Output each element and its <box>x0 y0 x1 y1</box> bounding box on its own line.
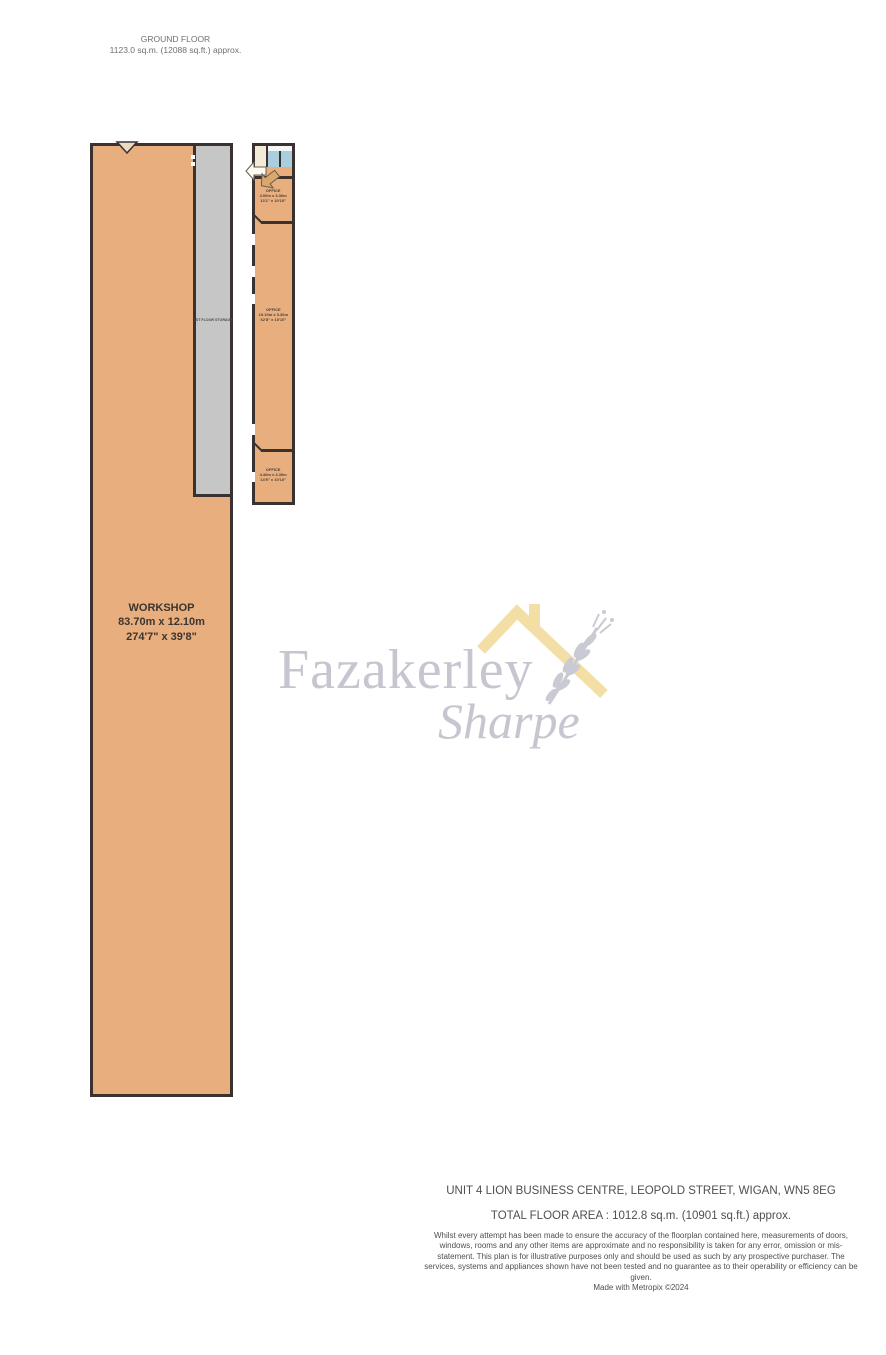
room-dim-imperial: 14'5" x 10'10" <box>260 478 287 483</box>
floor-area: 1123.0 sq.m. (12088 sq.ft.) approx. <box>93 45 258 56</box>
fixture-door-panel <box>255 146 268 167</box>
office-label: OFFICE 19.10m x 3.30m 62'8" x 10'10" <box>246 302 301 328</box>
storage-label: 1ST FLOOR STORAGE <box>186 312 240 328</box>
property-address: UNIT 4 LION BUSINESS CENTRE, LEOPOLD STR… <box>423 1185 859 1197</box>
watermark-brand-line2: Sharpe <box>438 692 638 750</box>
window-opening <box>251 424 255 435</box>
room-name: WORKSHOP <box>90 601 233 615</box>
room-dim-imperial: 274'7" x 39'8" <box>90 630 233 644</box>
footer: UNIT 4 LION BUSINESS CENTRE, LEOPOLD STR… <box>423 1185 859 1293</box>
room-dim-metric: 83.70m x 12.10m <box>90 615 233 629</box>
interior-wall <box>261 221 293 224</box>
office-label: OFFICE 4.00m x 3.30m 13'1" x 10'10" <box>246 183 301 209</box>
disclaimer-text: Whilst every attempt has been made to en… <box>423 1231 859 1283</box>
metropix-credit: Made with Metropix ©2024 <box>423 1283 859 1293</box>
room-dim-imperial: 62'8" x 10'10" <box>259 318 288 323</box>
window-opening <box>251 234 255 245</box>
fixture-window-band <box>268 146 292 151</box>
door-opening <box>191 162 195 166</box>
interior-wall <box>261 449 293 452</box>
floor-title: GROUND FLOOR <box>93 34 258 45</box>
interior-wall <box>254 176 293 179</box>
room-name: 1ST FLOOR STORAGE <box>194 318 233 323</box>
workshop-label: WORKSHOP 83.70m x 12.10m 274'7" x 39'8" <box>90 601 233 644</box>
door-opening <box>191 155 195 159</box>
total-floor-area: TOTAL FLOOR AREA : 1012.8 sq.m. (10901 s… <box>423 1210 859 1222</box>
office-label: OFFICE 4.40m x 3.30m 14'5" x 10'10" <box>246 462 301 488</box>
room-dim-imperial: 13'1" x 10'10" <box>260 199 287 204</box>
window-opening <box>251 266 255 277</box>
floor-header: GROUND FLOOR 1123.0 sq.m. (12088 sq.ft.)… <box>93 34 258 57</box>
